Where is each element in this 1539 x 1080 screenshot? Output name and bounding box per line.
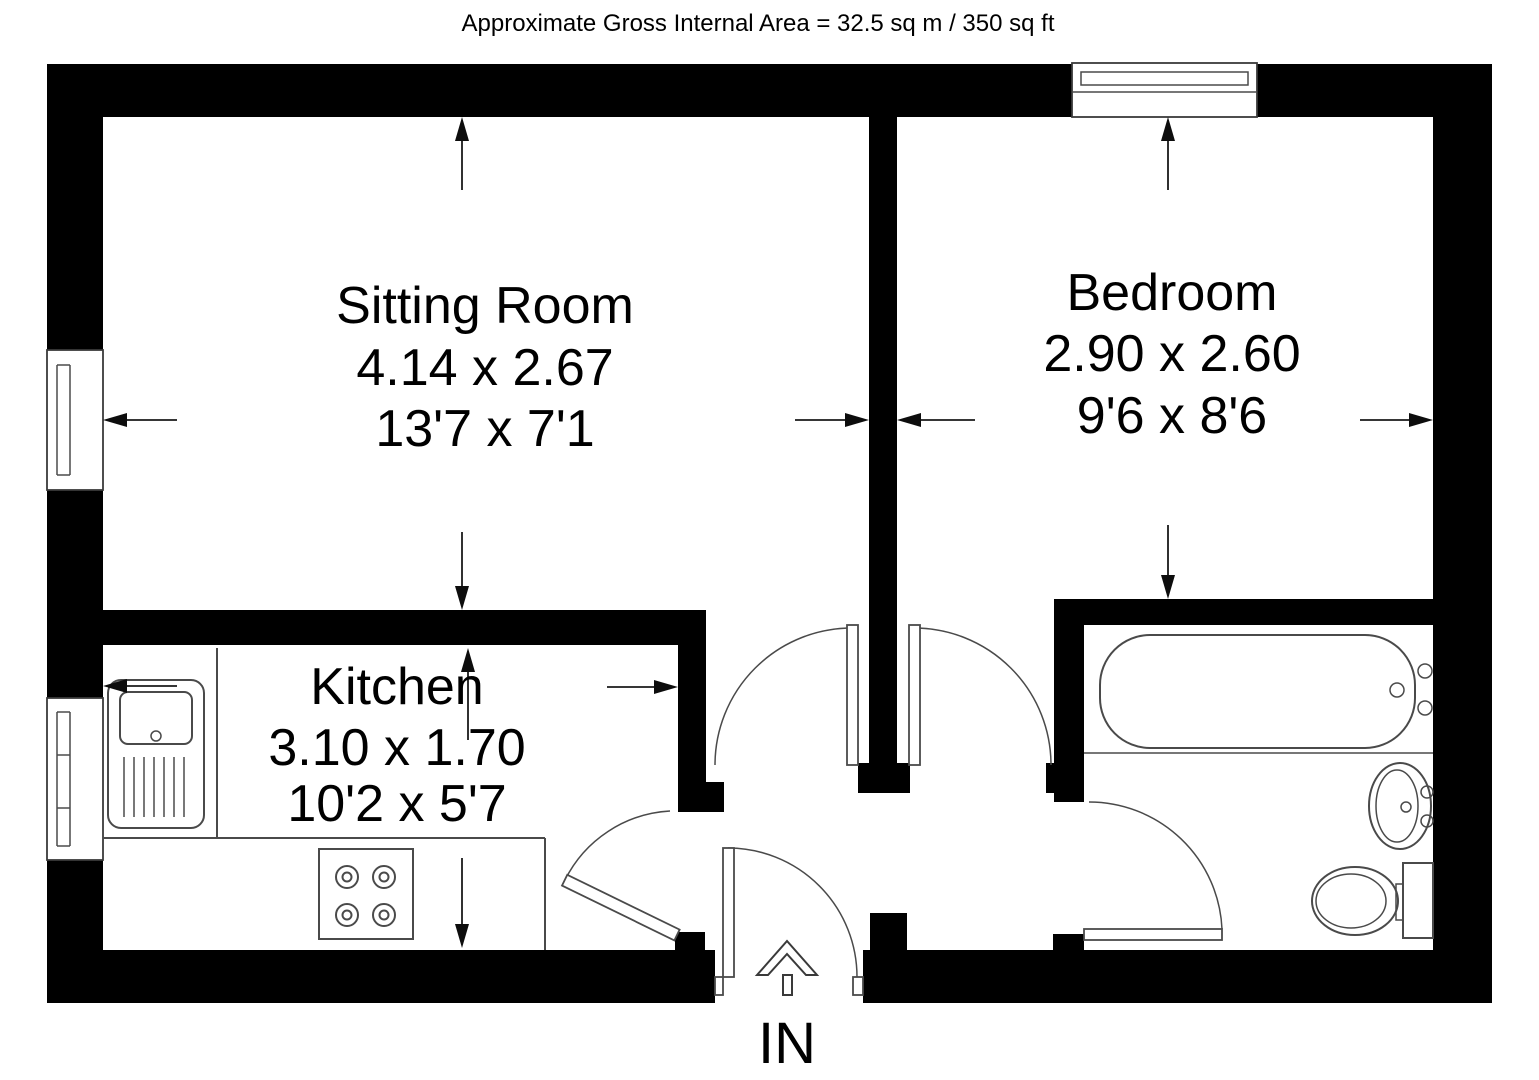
wall-bedroom-door-stub	[1046, 763, 1084, 793]
kitchen-stove	[319, 849, 413, 939]
wall-bottom-right	[863, 950, 1492, 1003]
wall-left-middle	[47, 490, 103, 698]
wall-right	[1433, 64, 1492, 1003]
page-title: Approximate Gross Internal Area = 32.5 s…	[462, 10, 1055, 37]
wall-kitchen-divider	[103, 610, 706, 645]
kitchen-size-imperial: 10'2 x 5'7	[287, 775, 506, 833]
wall-kitchen-hall-stub	[678, 782, 724, 812]
wall-bathroom-door-stub	[1053, 934, 1084, 950]
entrance-arrow-icon	[757, 941, 817, 995]
bedroom-size-metric: 2.90 x 2.60	[1043, 325, 1300, 383]
bathtub	[1084, 635, 1433, 753]
wall-center-divider	[869, 117, 897, 763]
floor-plan-page: Approximate Gross Internal Area = 32.5 s…	[0, 0, 1539, 1080]
kitchen-label: Kitchen 3.10 x 1.70 10'2 x 5'7	[268, 658, 525, 833]
wall-top-left	[47, 64, 1072, 117]
sitting-room-label: Sitting Room 4.14 x 2.67 13'7 x 7'1	[336, 277, 634, 458]
sitting-room-door	[715, 625, 858, 765]
kitchen-sink	[108, 680, 204, 828]
kitchen-name: Kitchen	[310, 658, 483, 716]
sitting-room-size-imperial: 13'7 x 7'1	[375, 400, 594, 458]
wall-kitchen-door-stub	[675, 932, 705, 950]
wall-entrance-right-stub	[870, 913, 907, 950]
kitchen-size-metric: 3.10 x 1.70	[268, 719, 525, 777]
floor-plan-canvas: Approximate Gross Internal Area = 32.5 s…	[0, 0, 1539, 1080]
walls	[47, 64, 1492, 1003]
entrance-door	[715, 848, 863, 995]
wash-basin	[1369, 763, 1433, 849]
entrance-label: IN	[758, 1011, 816, 1076]
wall-left-upper	[47, 64, 103, 350]
wall-bedroom-bottom	[1054, 599, 1433, 625]
bedroom-window	[1072, 63, 1257, 117]
bathroom-door	[1084, 802, 1222, 940]
bedroom-door	[909, 625, 1051, 765]
wall-kitchen-hall	[678, 645, 706, 782]
sitting-room-name: Sitting Room	[336, 277, 634, 335]
sitting-room-window	[47, 350, 103, 490]
wall-bottom-left	[47, 950, 715, 1003]
bedroom-name: Bedroom	[1067, 264, 1278, 322]
kitchen-door	[562, 811, 680, 940]
kitchen-window	[47, 698, 103, 860]
wall-center-divider-stub	[858, 763, 910, 793]
toilet	[1312, 863, 1433, 938]
sitting-room-size-metric: 4.14 x 2.67	[356, 339, 613, 397]
bedroom-label: Bedroom 2.90 x 2.60 9'6 x 8'6	[1043, 264, 1300, 445]
bedroom-size-imperial: 9'6 x 8'6	[1077, 387, 1267, 445]
